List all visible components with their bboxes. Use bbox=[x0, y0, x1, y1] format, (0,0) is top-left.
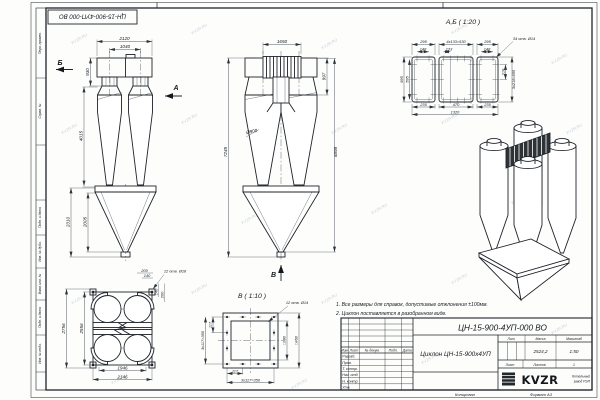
dim-label: □380 bbox=[282, 335, 287, 345]
svg-text:KVZR.RU: KVZR.RU bbox=[565, 122, 583, 135]
copied-label: Копировал bbox=[455, 392, 476, 397]
inverted-stamp: ЦН-15-900-4УП-000 ВО bbox=[48, 10, 137, 24]
mass-label: Масса bbox=[535, 337, 545, 341]
dim-label: 295 bbox=[483, 39, 491, 44]
tb-row-label: Т. контр. bbox=[342, 367, 358, 371]
sheets-value: 1 bbox=[573, 363, 575, 367]
detail-v: В ( 1:10 ) 117 3x117=350 117 3x117=350 □… bbox=[200, 293, 309, 384]
tb-header-cell: Изм bbox=[342, 348, 349, 352]
svg-text:KVZR.RU: KVZR.RU bbox=[550, 52, 568, 65]
scale-label: Масштаб bbox=[566, 337, 582, 341]
dim-label: 117 bbox=[208, 321, 213, 328]
notes: 1. Все размеры для справок, допустимые о… bbox=[335, 302, 488, 317]
margin-label: Справ. № bbox=[38, 103, 42, 118]
company-logo: KVZR Котельный завод РЭП bbox=[502, 373, 591, 388]
holes-callout: 34 отв. Ø14 bbox=[513, 36, 536, 41]
detail-title: А,Б ( 1:20 ) bbox=[445, 19, 480, 26]
svg-text:KVZR.RU: KVZR.RU bbox=[180, 112, 198, 125]
note-line: 2. Циклон поставляется в разобранном вид… bbox=[335, 311, 447, 317]
dim-label: 3x218=655 bbox=[511, 69, 516, 89]
svg-text:KVZR.RU: KVZR.RU bbox=[60, 122, 78, 135]
dim-label: 7245 bbox=[223, 146, 228, 157]
dim-label: 148 bbox=[484, 47, 491, 52]
sheet-label: Лист bbox=[505, 363, 515, 367]
side-view: Ø900 1650 997 7245 6898 В bbox=[223, 39, 338, 281]
svg-text:KVZR.RU: KVZR.RU bbox=[330, 122, 348, 135]
front-view: 2120 1040 930 4015 2310 2005 Б А bbox=[56, 36, 182, 261]
svg-text:KVZR.RU: KVZR.RU bbox=[370, 202, 388, 215]
tb-header-cell: Дата bbox=[402, 348, 412, 352]
svg-text:KVZR.RU: KVZR.RU bbox=[320, 37, 338, 50]
svg-text:KVZR.RU: KVZR.RU bbox=[550, 322, 568, 335]
margin-label: Взам. инв. № bbox=[38, 273, 42, 294]
dim-label: 2005 bbox=[82, 216, 87, 228]
dim-label: 148 bbox=[420, 47, 427, 52]
view-arrow-label-a: А bbox=[172, 85, 178, 92]
margin-label: Подп. и дата bbox=[38, 207, 42, 228]
drawing-canvas: KVZR.RU KVZR.RU KVZR.RU KVZR.RU KVZR.RU … bbox=[0, 0, 600, 400]
margin-label: Подп. и дата bbox=[38, 307, 42, 328]
dim-label: 2310 bbox=[65, 216, 70, 228]
tb-header-cell: Лист bbox=[349, 348, 359, 352]
plan-view: 2756 2556 1946 2146 200 140 140 200 12 о… bbox=[61, 268, 187, 381]
doc-designation: ЦН-15-900-4УП-000 ВО bbox=[458, 324, 547, 333]
dim-label: 1650 bbox=[277, 39, 288, 44]
detail-title: В ( 1:10 ) bbox=[238, 293, 266, 300]
tb-row-label: Утв. bbox=[342, 385, 350, 389]
dim-label: 930 bbox=[85, 68, 90, 76]
svg-text:KVZR.RU: KVZR.RU bbox=[190, 282, 208, 295]
holes-callout: 12 отв. Ø18 bbox=[164, 269, 187, 274]
dim-label: 117 bbox=[232, 368, 239, 373]
margin-label: Перв. примен. bbox=[38, 32, 42, 54]
dim-label: 997 bbox=[321, 72, 326, 80]
sheets-label: Листов bbox=[532, 363, 546, 367]
title-block-rows: Разраб. Пров. Т. контр. Нач. отд. Н. кон… bbox=[342, 355, 358, 390]
dim-label: 595 bbox=[405, 75, 410, 82]
svg-text:KVZR.RU: KVZR.RU bbox=[450, 272, 468, 285]
logo-text: KVZR bbox=[521, 373, 558, 387]
lit-label: Лит. bbox=[507, 337, 516, 341]
dim-label: 200 bbox=[159, 291, 164, 299]
scale-value: 1:50 bbox=[570, 349, 579, 354]
dim-label: 1320 bbox=[451, 109, 460, 114]
doc-name: Циклон ЦН-15-900х4УП bbox=[420, 351, 491, 358]
margin-label: Инв. № дубл. bbox=[38, 241, 42, 261]
dim-label: 2120 bbox=[118, 36, 130, 41]
dim-label: 695 bbox=[399, 75, 404, 82]
tb-row-label: Н. контр. bbox=[342, 379, 358, 383]
tb-row-label: Нач. отд. bbox=[342, 373, 358, 377]
dim-label: 1946 bbox=[117, 365, 128, 370]
logo-subtext: Котельный bbox=[572, 375, 590, 379]
dim-label: 2756 bbox=[61, 323, 66, 335]
dim-label: 295 bbox=[419, 39, 427, 44]
dim-label: □460 bbox=[294, 335, 299, 345]
dim-label: 235 bbox=[419, 102, 427, 107]
drawing-sheet: KVZR.RU KVZR.RU KVZR.RU KVZR.RU KVZR.RU … bbox=[0, 0, 600, 400]
dim-label: 3x117=350 bbox=[241, 377, 261, 382]
tb-header-cell: № докум. bbox=[365, 348, 380, 352]
dim-label: 2556 bbox=[79, 323, 84, 335]
holes-callout: 12 отв. Ø14 bbox=[286, 300, 309, 305]
dim-label: 470 bbox=[453, 102, 460, 107]
tb-row-label: Пров. bbox=[342, 361, 351, 365]
dim-label: 235 bbox=[483, 102, 491, 107]
dim-label: 4x133=530 bbox=[446, 39, 466, 44]
format-label: Формат А3 bbox=[530, 392, 553, 397]
dim-label: 2146 bbox=[116, 374, 128, 379]
tb-header-cell: Подп. bbox=[389, 348, 398, 352]
dim-label: 6898 bbox=[333, 146, 338, 157]
tb-row-label: Разраб. bbox=[342, 355, 355, 359]
dim-label: 218 bbox=[500, 68, 505, 76]
view-arrow-label-b: Б bbox=[58, 60, 63, 67]
dim-label: 1040 bbox=[120, 44, 131, 49]
svg-text:KVZR.RU: KVZR.RU bbox=[240, 212, 258, 225]
dim-label: 133 bbox=[446, 47, 453, 52]
dim-label: 140 bbox=[153, 288, 158, 295]
margin-labels: Перв. примен. Справ. № Подп. и дата Инв.… bbox=[38, 32, 42, 364]
svg-text:KVZR.RU: KVZR.RU bbox=[190, 22, 208, 35]
dim-label: 140 bbox=[144, 273, 151, 278]
stamp-text: ЦН-15-900-4УП-000 ВО bbox=[59, 13, 126, 20]
mass-value: 2524,2 bbox=[532, 349, 547, 354]
svg-text:KVZR.RU: KVZR.RU bbox=[290, 377, 308, 390]
margin-label: Инв. № подл. bbox=[38, 343, 42, 364]
detail-ab: А,Б ( 1:20 ) 295 4x133=530 295 148 133 1… bbox=[399, 19, 536, 116]
isometric-view bbox=[479, 121, 576, 300]
svg-text:KVZR.RU: KVZR.RU bbox=[70, 32, 88, 45]
title-block-header: Изм Лист № докум. Подп. Дата bbox=[342, 348, 412, 352]
dim-label: 4015 bbox=[78, 130, 83, 141]
note-line: 1. Все размеры для справок, допустимые о… bbox=[336, 302, 488, 308]
view-arrow-label-v: В bbox=[271, 272, 276, 279]
logo-subtext: завод РЭП bbox=[573, 380, 591, 384]
svg-text:KVZR.RU: KVZR.RU bbox=[70, 292, 88, 305]
dim-label: 3x117=350 bbox=[200, 330, 205, 350]
